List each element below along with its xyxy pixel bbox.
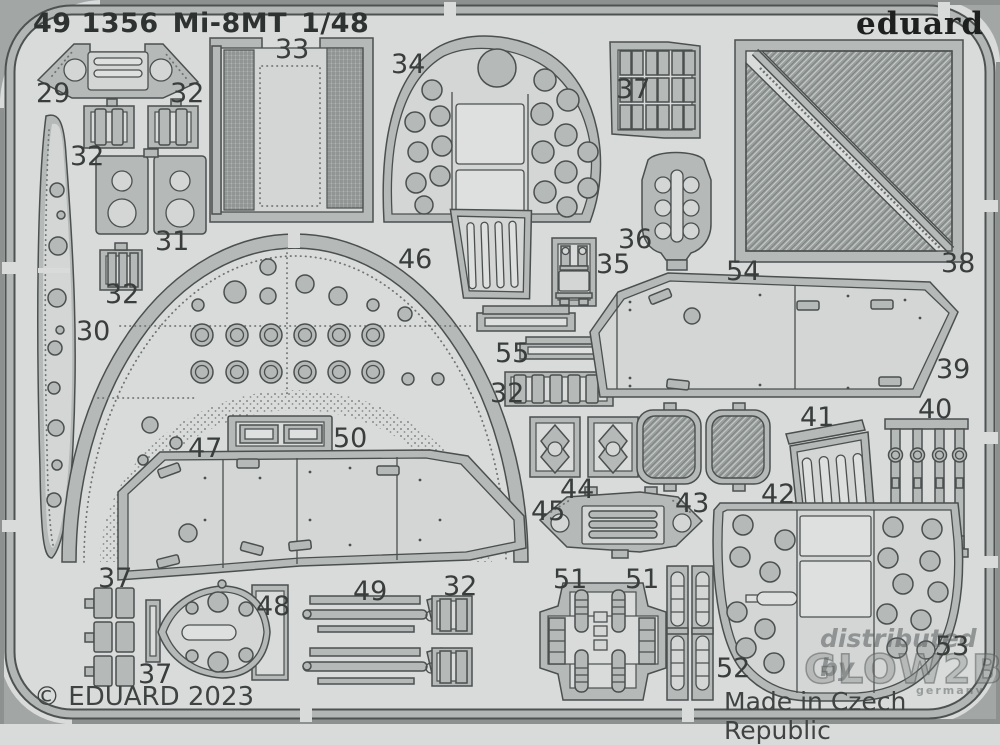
part-label-35: 35 (596, 251, 630, 278)
part-35-drawing (552, 238, 596, 306)
photoetch-fret-photo: 49 1356Mi-8MT1/48 eduard © EDUARD 2023 M… (0, 0, 1000, 724)
part-label-29: 29 (36, 80, 70, 107)
kit-name: Mi-8MT (173, 8, 287, 39)
part-label-32d: 32 (490, 380, 524, 407)
part-label-32b: 32 (70, 143, 104, 170)
part-label-41: 41 (800, 404, 834, 431)
sheet-title: 49 1356Mi-8MT1/48 (33, 8, 383, 39)
part-label-45: 45 (531, 498, 565, 525)
eduard-logo: eduard (856, 6, 984, 42)
part-37-pairs-drawing (85, 588, 134, 686)
part-33-drawing (210, 38, 373, 222)
part-label-51b: 51 (625, 566, 659, 593)
part-label-54: 54 (726, 258, 760, 285)
part-label-37b: 37 (98, 565, 132, 592)
part-label-43: 43 (675, 490, 709, 517)
part-louvre-panel-drawing (450, 207, 534, 302)
part-50-drawing (228, 416, 332, 452)
kit-scale: 1/48 (301, 8, 369, 39)
catalog-number: 49 1356 (33, 8, 159, 39)
part-label-47: 47 (188, 435, 222, 462)
part-51-cluster-drawing (540, 583, 666, 700)
part-label-53: 53 (935, 633, 969, 660)
part-label-40: 40 (918, 396, 952, 423)
part-label-33: 33 (275, 36, 309, 63)
part-label-32a: 32 (170, 80, 204, 107)
part-47-panel-drawing (118, 450, 526, 580)
part-54-38-mesh-drawing (735, 40, 963, 262)
part-label-37a: 37 (616, 76, 650, 103)
part-label-34: 34 (391, 51, 425, 78)
part-label-42: 42 (761, 481, 795, 508)
part-label-37c: 37 (138, 661, 172, 688)
part-label-49: 49 (353, 578, 387, 605)
part-label-31: 31 (155, 228, 189, 255)
part-label-48: 48 (256, 593, 290, 620)
part-label-50: 50 (333, 425, 367, 452)
part-label-32c: 32 (105, 281, 139, 308)
part-label-38: 38 (941, 250, 975, 277)
part-label-39: 39 (936, 356, 970, 383)
part-label-30: 30 (76, 318, 110, 345)
part-label-55: 55 (495, 340, 529, 367)
part-label-52: 52 (716, 655, 750, 682)
part-label-51a: 51 (553, 566, 587, 593)
part-42-53-dome-drawing (713, 503, 963, 701)
part-39-panel-drawing (590, 273, 958, 397)
part-label-46: 46 (398, 246, 432, 273)
made-in-text: Made in Czech Republic (724, 687, 1000, 745)
part-label-32e: 32 (443, 573, 477, 600)
